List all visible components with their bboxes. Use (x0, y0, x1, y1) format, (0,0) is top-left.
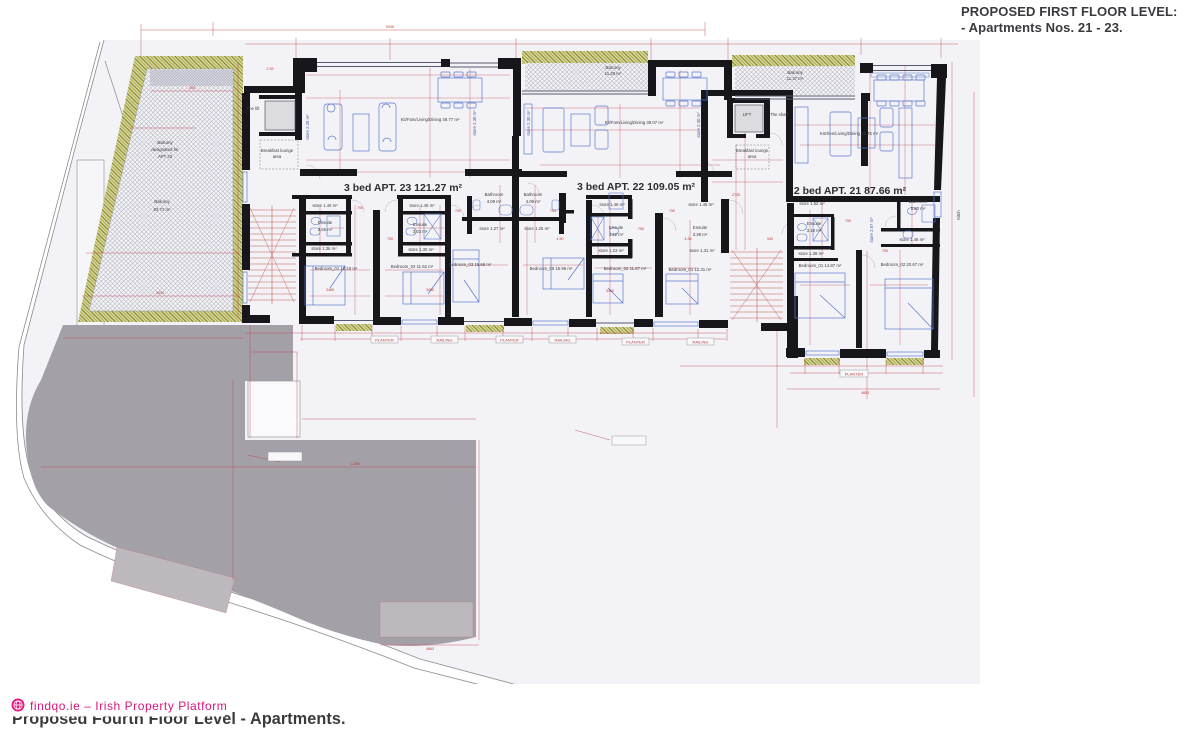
svg-text:496: 496 (189, 86, 195, 90)
svg-text:store 1.45 m²: store 1.45 m² (688, 202, 714, 207)
svg-text:Bathroom: Bathroom (524, 192, 543, 197)
svg-text:3 bed APT. 23 121.27 m²: 3 bed APT. 23 121.27 m² (344, 182, 463, 194)
svg-text:11.29 m²: 11.29 m² (605, 71, 622, 76)
svg-text:store 1.23 m²: store 1.23 m² (598, 248, 624, 253)
svg-text:3.19 m²: 3.19 m² (807, 228, 822, 233)
svg-text:C-800: C-800 (350, 462, 360, 466)
svg-text:The lift: The lift (247, 106, 261, 111)
svg-text:2735: 2735 (732, 193, 740, 197)
svg-text:2.39: 2.39 (267, 67, 274, 71)
svg-text:PLANTER: PLANTER (845, 372, 864, 377)
svg-text:Bathroom: Bathroom (485, 192, 504, 197)
svg-text:3.03 m²: 3.03 m² (413, 229, 428, 234)
svg-text:RAILING: RAILING (436, 338, 452, 343)
svg-text:Bedroom_02 11.67 m²: Bedroom_02 11.67 m² (604, 266, 647, 271)
svg-text:Breakfast lounge: Breakfast lounge (736, 148, 769, 153)
svg-text:store 2.30 m²: store 2.30 m² (696, 112, 701, 138)
svg-text:750: 750 (845, 219, 851, 223)
svg-text:RAILING: RAILING (554, 338, 570, 343)
svg-text:store 1.38 m²: store 1.38 m² (798, 251, 824, 256)
svg-text:designated for: designated for (151, 147, 179, 152)
svg-text:940: 940 (767, 237, 773, 241)
svg-text:3485: 3485 (326, 288, 334, 292)
svg-text:store 1.40 m²: store 1.40 m² (312, 203, 338, 208)
svg-text:Balcony: Balcony (157, 140, 173, 145)
svg-text:store 1.45 m²: store 1.45 m² (409, 203, 435, 208)
svg-text:PLANTER: PLANTER (500, 338, 519, 343)
svg-text:750: 750 (669, 209, 675, 213)
svg-text:4863: 4863 (426, 647, 434, 651)
svg-text:4.36: 4.36 (685, 237, 692, 241)
svg-text:store 1.46 m²: store 1.46 m² (599, 202, 625, 207)
svg-text:Bedroom_01 14.87 m²: Bedroom_01 14.87 m² (799, 263, 842, 268)
svg-text:Bedroom_05 15.96 m²: Bedroom_05 15.96 m² (530, 266, 573, 271)
svg-text:LIFT: LIFT (743, 112, 752, 117)
svg-text:store 1.31 m²: store 1.31 m² (689, 248, 715, 253)
svg-text:Kit/Fam/Living/Dining 48.77 m²: Kit/Fam/Living/Dining 48.77 m² (401, 117, 460, 122)
svg-text:Bedroom_03 15.66 m²: Bedroom_03 15.66 m² (449, 262, 492, 267)
svg-text:3434: 3434 (156, 291, 164, 295)
svg-text:store 1.30 m²: store 1.30 m² (408, 247, 434, 252)
svg-text:store 1.26 m²: store 1.26 m² (524, 226, 550, 231)
svg-text:Ensuite: Ensuite (609, 225, 624, 230)
svg-text:5.80 m²: 5.80 m² (911, 206, 926, 211)
svg-text:area: area (748, 154, 757, 159)
svg-text:750: 750 (387, 237, 393, 241)
svg-text:3400: 3400 (426, 288, 434, 292)
svg-text:750: 750 (638, 227, 644, 231)
svg-text:Bedroom_01 12.18 m²: Bedroom_01 12.18 m² (315, 266, 358, 271)
svg-text:findqo.ie – Irish Property Pla: findqo.ie – Irish Property Platform (30, 699, 227, 713)
svg-text:2 bed APT. 21 87.66 m²: 2 bed APT. 21 87.66 m² (794, 185, 907, 197)
svg-text:APT 23: APT 23 (158, 154, 173, 159)
svg-text:Ensuite: Ensuite (413, 222, 428, 227)
svg-text:store 1.46 m²: store 1.46 m² (899, 237, 925, 242)
svg-text:store 2.87 m²: store 2.87 m² (869, 217, 874, 243)
svg-text:3400: 3400 (606, 289, 614, 293)
svg-text:store 2.30 m²: store 2.30 m² (526, 110, 531, 136)
svg-text:PLANTER: PLANTER (375, 338, 394, 343)
svg-text:750: 750 (882, 249, 888, 253)
svg-text:750: 750 (455, 209, 461, 213)
svg-text:750: 750 (357, 206, 363, 210)
svg-text:Kitch: Kitch (956, 210, 961, 220)
svg-text:PLANTER: PLANTER (626, 340, 645, 345)
svg-text:Ensuite: Ensuite (693, 225, 708, 230)
svg-text:Balcony: Balcony (605, 65, 621, 70)
svg-text:The shaft: The shaft (770, 112, 789, 117)
svg-text:area: area (273, 154, 282, 159)
svg-text:Ensuite: Ensuite (807, 221, 822, 226)
svg-text:750: 750 (550, 209, 556, 213)
svg-text:5936: 5936 (386, 25, 394, 29)
svg-text:Kitchen/Living/Dining 51.75 m²: Kitchen/Living/Dining 51.75 m² (820, 131, 879, 136)
svg-text:store 1.52 m²: store 1.52 m² (799, 201, 825, 206)
svg-text:Balcony: Balcony (154, 199, 170, 204)
svg-text:store 2.39 m²: store 2.39 m² (305, 114, 310, 140)
svg-text:3.38 m²: 3.38 m² (693, 232, 708, 237)
svg-text:Balcony: Balcony (787, 70, 803, 75)
svg-text:3.22 m²: 3.22 m² (609, 232, 624, 237)
svg-text:Bedroom_02 11.62 m²: Bedroom_02 11.62 m² (391, 264, 434, 269)
svg-text:store 2.30 m²: store 2.30 m² (472, 110, 477, 136)
svg-text:83.71 m²: 83.71 m² (154, 207, 172, 212)
svg-text:4.09 m²: 4.09 m² (526, 199, 541, 204)
svg-text:4.50: 4.50 (557, 237, 564, 241)
svg-text:2.55 m²: 2.55 m² (318, 227, 333, 232)
svg-text:11.37 m²: 11.37 m² (787, 76, 804, 81)
svg-text:3 bed APT. 22 109.05 m²: 3 bed APT. 22 109.05 m² (577, 181, 696, 193)
svg-text:Kit/Fam/Living/Dining 39.07 m²: Kit/Fam/Living/Dining 39.07 m² (605, 120, 664, 125)
svg-text:PROPOSED FIRST FLOOR LEVEL:: PROPOSED FIRST FLOOR LEVEL: (961, 4, 1178, 19)
svg-text:4853: 4853 (861, 391, 869, 395)
svg-text:Breakfast lounge: Breakfast lounge (261, 148, 294, 153)
svg-text:store 1.27 m²: store 1.27 m² (479, 226, 505, 231)
svg-text:4.09 m²: 4.09 m² (487, 199, 502, 204)
svg-text:Ensuite: Ensuite (318, 220, 333, 225)
svg-text:Bedroom_02 20.67 m²: Bedroom_02 20.67 m² (881, 262, 924, 267)
svg-text:RAILING: RAILING (692, 340, 708, 345)
svg-text:Bathroom: Bathroom (909, 199, 928, 204)
svg-text:store 1.36 m²: store 1.36 m² (311, 246, 337, 251)
svg-text:- Apartments Nos. 21 - 23.: - Apartments Nos. 21 - 23. (961, 20, 1123, 35)
svg-text:Bedroom_01 12.31 m²: Bedroom_01 12.31 m² (669, 267, 712, 272)
